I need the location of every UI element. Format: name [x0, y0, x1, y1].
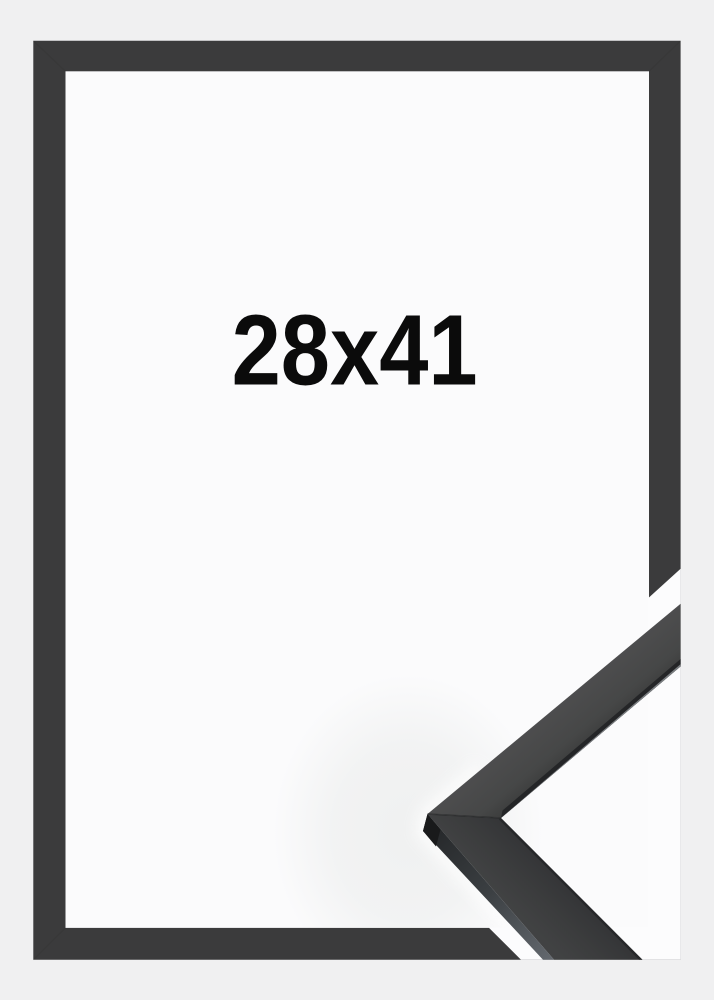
svg-text:28x41: 28x41 [232, 295, 478, 407]
